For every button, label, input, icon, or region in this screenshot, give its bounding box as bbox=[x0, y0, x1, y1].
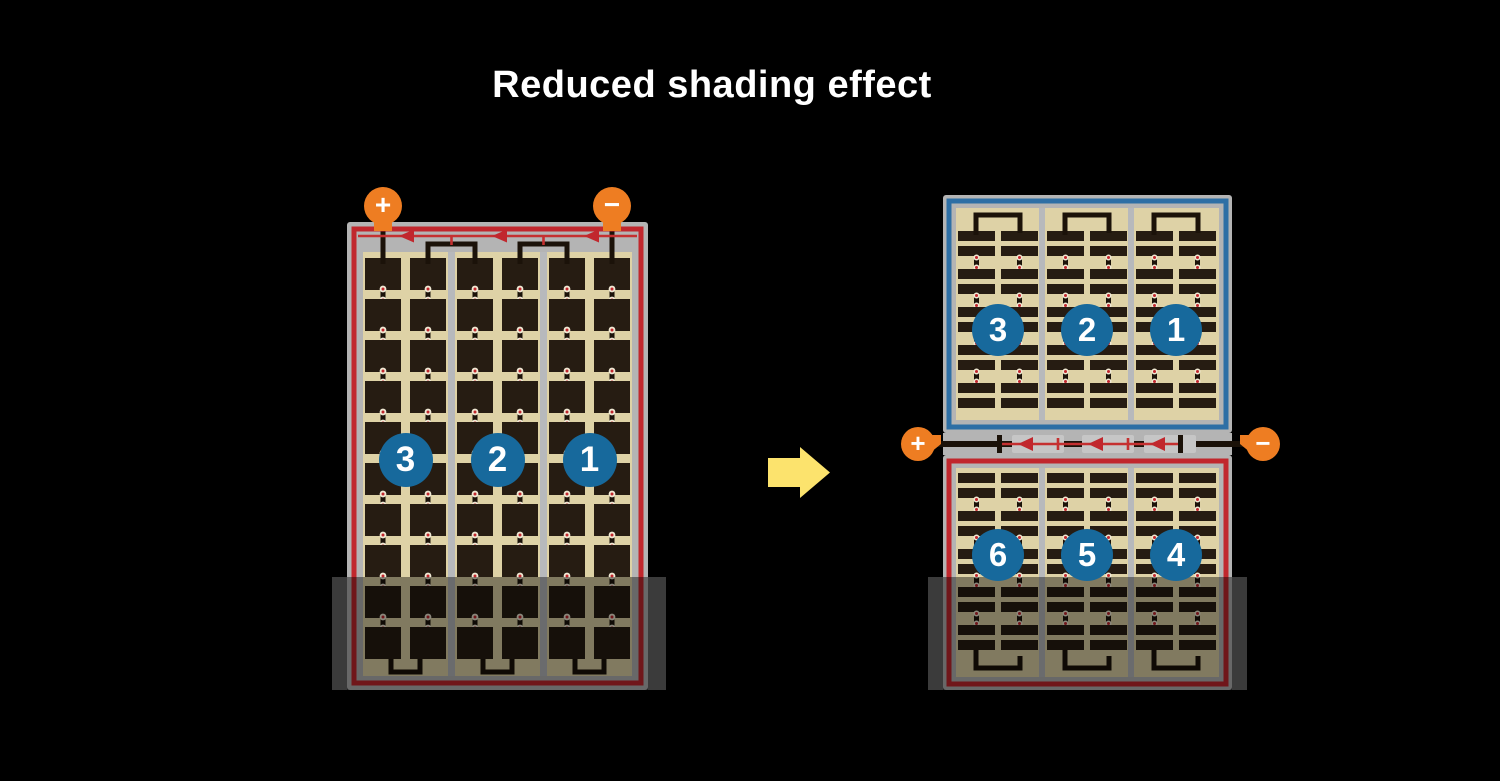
plus-terminal-icon: + bbox=[901, 427, 935, 461]
pin-point bbox=[603, 220, 621, 231]
string-number: 1 bbox=[1167, 311, 1185, 349]
pin-point bbox=[930, 435, 941, 453]
diagram-canvas: Reduced shading effect + − + − 3 2 1 3 2… bbox=[0, 0, 1500, 781]
page-title: Reduced shading effect bbox=[412, 64, 1012, 107]
panel-graphic bbox=[765, 445, 835, 503]
minus-terminal-icon: − bbox=[1246, 427, 1280, 461]
plus-terminal-icon: + bbox=[364, 187, 402, 225]
string-number: 5 bbox=[1078, 536, 1096, 574]
shade-overlay-left bbox=[347, 577, 648, 690]
string-number-badge: 5 bbox=[1061, 529, 1113, 581]
string-number-badge: 3 bbox=[972, 304, 1024, 356]
string-number-badge: 1 bbox=[563, 433, 617, 487]
string-number: 1 bbox=[580, 440, 599, 480]
string-number: 2 bbox=[1078, 311, 1096, 349]
string-number-badge: 4 bbox=[1150, 529, 1202, 581]
string-number: 4 bbox=[1167, 536, 1185, 574]
string-number-badge: 2 bbox=[1061, 304, 1113, 356]
minus-terminal-label: − bbox=[604, 191, 620, 219]
transition-arrow-icon bbox=[765, 445, 835, 508]
pin-point bbox=[1240, 435, 1251, 453]
string-number-badge: 2 bbox=[471, 433, 525, 487]
pin-point bbox=[374, 220, 392, 231]
string-divider bbox=[1039, 208, 1045, 420]
string-number: 3 bbox=[989, 311, 1007, 349]
string-number: 3 bbox=[396, 440, 415, 480]
junction-wiring bbox=[900, 428, 1280, 465]
panel-graphic bbox=[900, 428, 1280, 460]
plus-terminal-label: + bbox=[375, 191, 391, 219]
junction-strip bbox=[930, 433, 1252, 455]
string-number: 6 bbox=[989, 536, 1007, 574]
minus-terminal-label: − bbox=[1255, 430, 1270, 456]
string-number-badge: 3 bbox=[379, 433, 433, 487]
string-divider bbox=[1128, 208, 1134, 420]
shade-overlay-right bbox=[943, 577, 1232, 690]
string-number-badge: 6 bbox=[972, 529, 1024, 581]
minus-terminal-icon: − bbox=[593, 187, 631, 225]
string-number: 2 bbox=[488, 440, 507, 480]
string-number-badge: 1 bbox=[1150, 304, 1202, 356]
plus-terminal-label: + bbox=[910, 430, 925, 456]
